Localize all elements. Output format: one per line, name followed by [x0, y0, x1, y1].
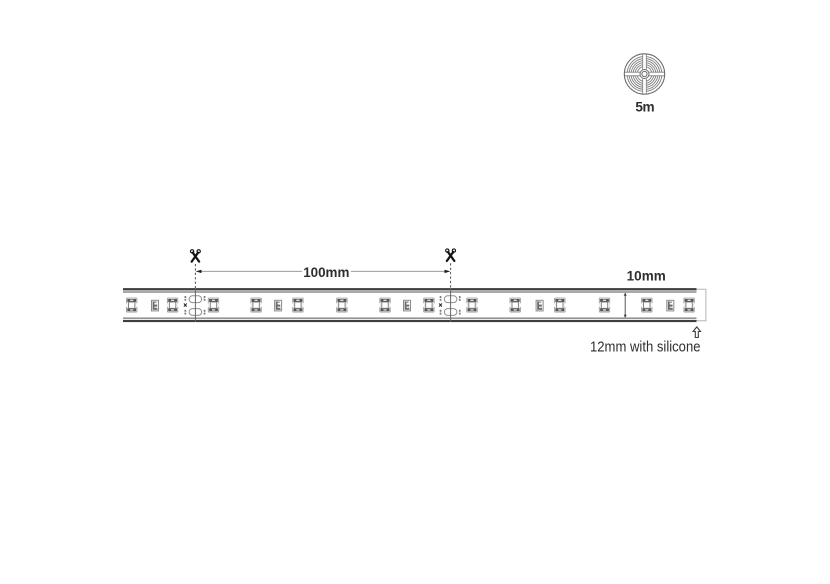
svg-text:10mm: 10mm — [627, 269, 666, 284]
svg-text:100mm: 100mm — [303, 265, 349, 280]
svg-text:12mm with silicone: 12mm with silicone — [590, 339, 701, 355]
svg-text:5m: 5m — [635, 100, 654, 115]
